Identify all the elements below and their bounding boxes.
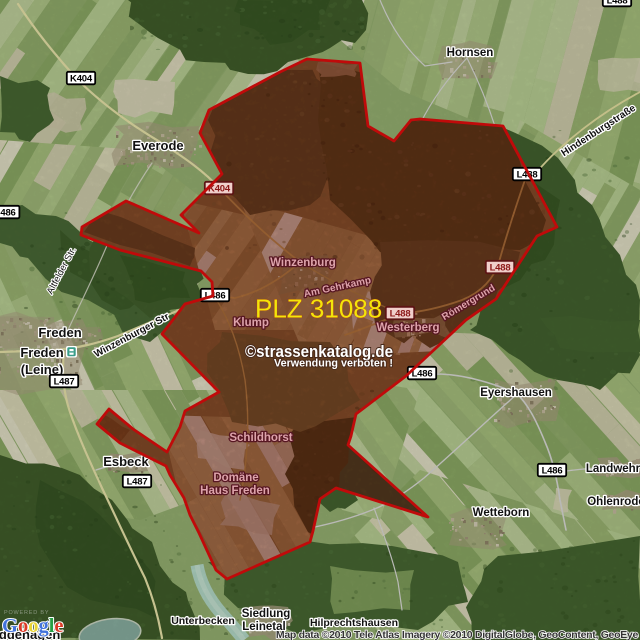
svg-text:Westerberg: Westerberg [376,322,439,334]
svg-text:Haus Freden: Haus Freden [200,485,270,497]
svg-text:Siedlung: Siedlung [242,608,291,620]
svg-text:Eyershausen: Eyershausen [480,387,552,399]
svg-text:PLZ 31088: PLZ 31088 [255,294,382,324]
svg-text:L488: L488 [490,263,511,274]
svg-text:Google: Google [2,615,64,637]
svg-text:Schildhorst: Schildhorst [229,432,292,444]
svg-text:Wetteborn: Wetteborn [473,507,530,519]
svg-text:L486: L486 [412,369,433,380]
svg-text:Unterbecken: Unterbecken [171,615,235,627]
svg-text:486: 486 [0,208,15,219]
svg-text:L486: L486 [205,291,226,302]
svg-text:Domäne: Domäne [213,472,258,484]
svg-text:Freden: Freden [20,345,63,360]
svg-text:Verwendung verboten !: Verwendung verboten ! [274,358,393,370]
svg-text:L488: L488 [607,0,628,7]
svg-text:L487: L487 [127,477,148,488]
svg-text:Esbeck: Esbeck [103,454,149,469]
svg-text:K404: K404 [70,74,93,85]
svg-text:L486: L486 [542,466,563,477]
svg-text:L488: L488 [390,309,411,320]
svg-text:Hornsen: Hornsen [447,47,494,59]
svg-text:Winzenburg: Winzenburg [270,257,336,269]
svg-text:Ohlenrode: Ohlenrode [587,496,640,508]
svg-text:Everode: Everode [132,138,183,153]
svg-text:Freden: Freden [38,325,81,340]
svg-text:Hilprechtshausen: Hilprechtshausen [310,617,398,629]
svg-text:Map data ©2010 Tele Atlas Ima: Map data ©2010 Tele Atlas Imagery ©2010 … [276,629,639,640]
svg-text:L487: L487 [54,377,75,388]
svg-text:Landwehr: Landwehr [586,463,640,475]
